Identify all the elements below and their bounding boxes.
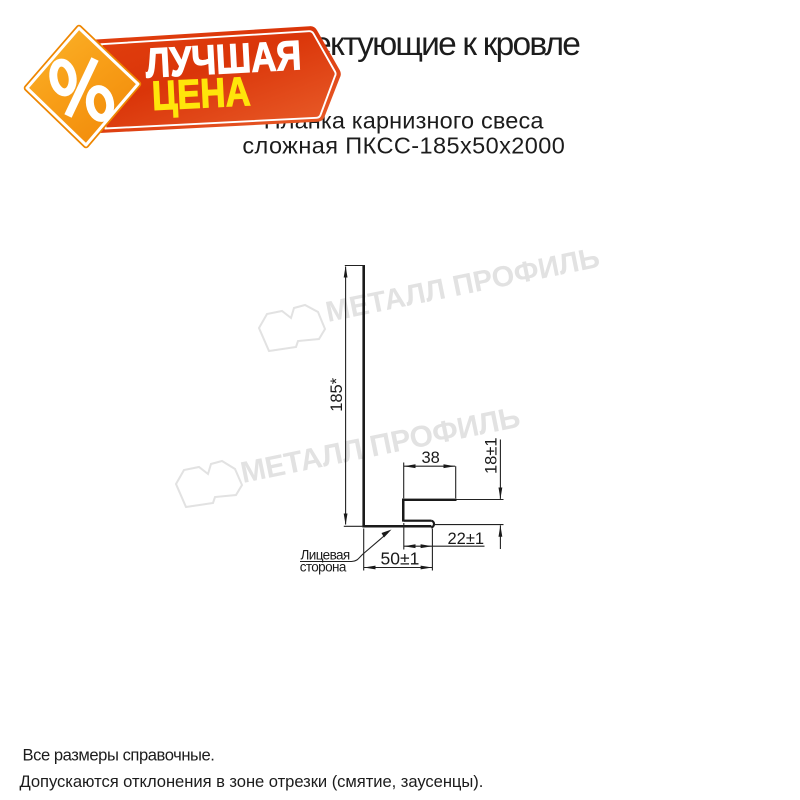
svg-text:Все размеры справочные.: Все размеры справочные. — [23, 746, 215, 765]
svg-text:МЕТАЛЛ ПРОФИЛЬ: МЕТАЛЛ ПРОФИЛЬ — [238, 401, 523, 490]
svg-text:сложная ПКСС-185х50х2000: сложная ПКСС-185х50х2000 — [242, 132, 565, 158]
svg-text:22±1: 22±1 — [448, 530, 485, 548]
svg-text:сторона: сторона — [300, 560, 347, 575]
svg-text:18±1: 18±1 — [483, 437, 501, 474]
svg-text:185*: 185* — [328, 377, 346, 412]
svg-text:Допускаются отклонения в зоне: Допускаются отклонения в зоне отрезки (с… — [20, 772, 484, 791]
svg-text:ЦЕНА: ЦЕНА — [151, 68, 252, 119]
svg-text:38: 38 — [422, 449, 440, 467]
svg-text:50±1: 50±1 — [381, 549, 420, 569]
